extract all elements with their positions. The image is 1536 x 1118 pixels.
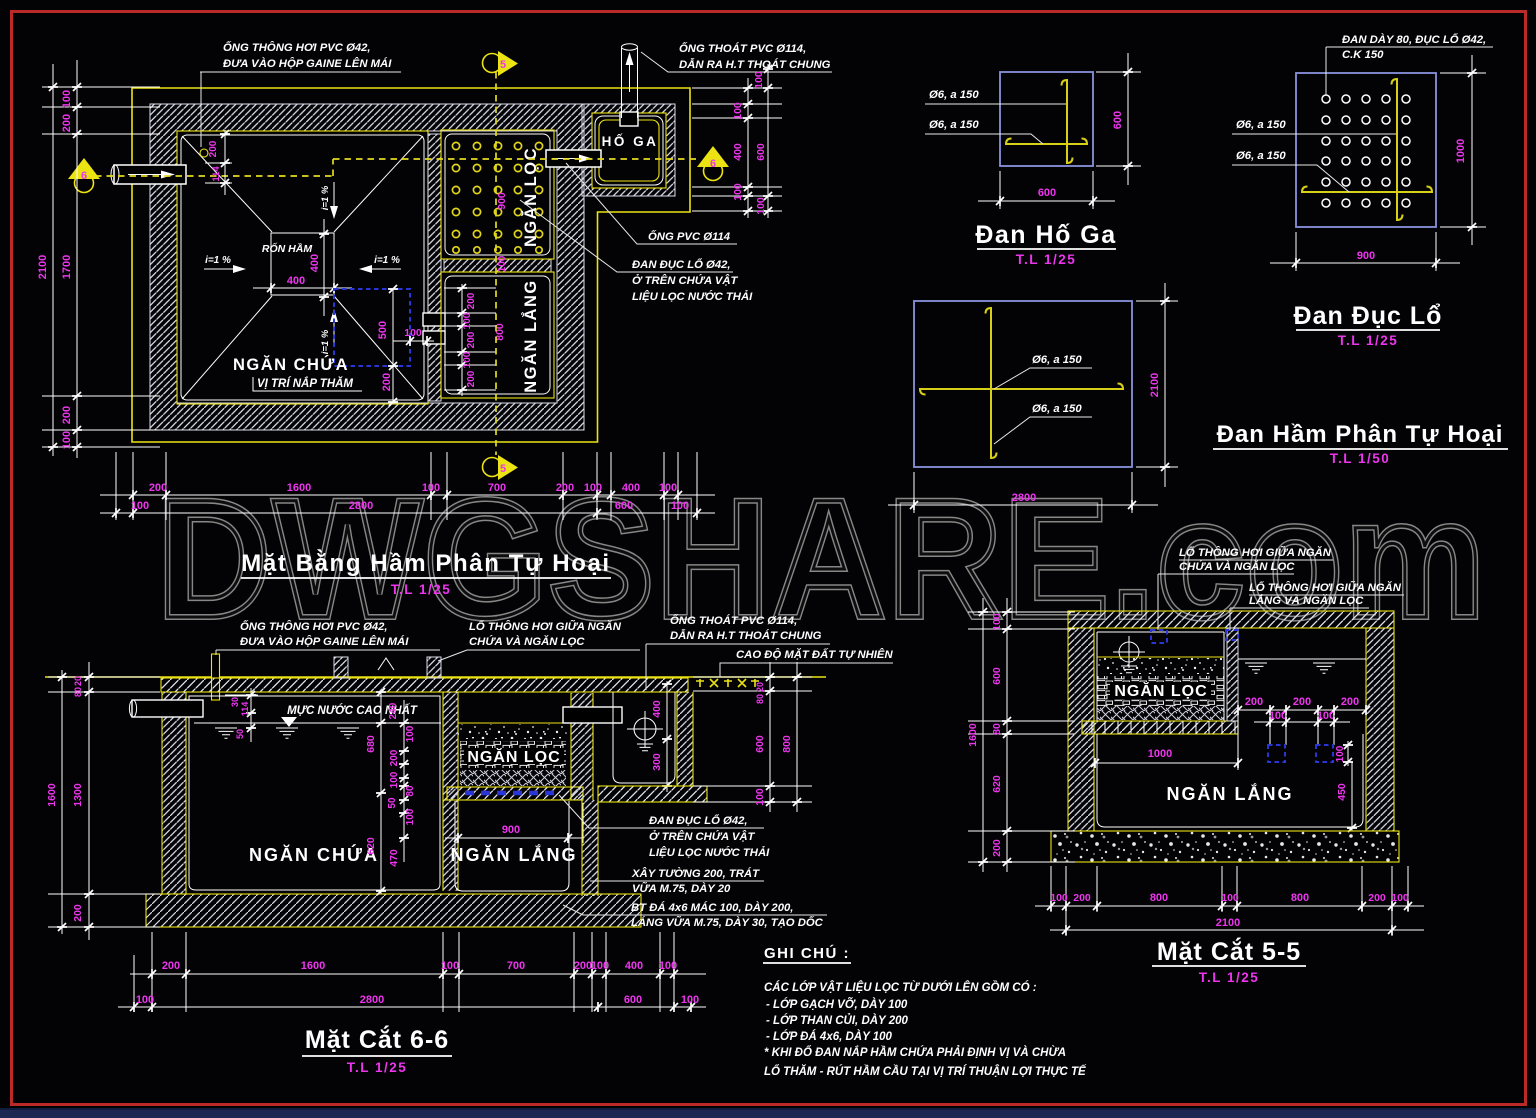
svg-text:100: 100 — [755, 197, 767, 215]
svg-text:LIỆU LỌC NƯỚC THẢI: LIỆU LỌC NƯỚC THẢI — [649, 846, 770, 859]
svg-text:5: 5 — [500, 59, 506, 71]
svg-text:DẪN RA H.T THOÁT CHUNG: DẪN RA H.T THOÁT CHUNG — [670, 629, 822, 642]
svg-text:620: 620 — [365, 837, 377, 855]
svg-text:ỐNG THÔNG HƠI PVC Ø42,: ỐNG THÔNG HƠI PVC Ø42, — [240, 620, 388, 633]
svg-text:100: 100 — [732, 183, 744, 201]
svg-text:LỔ THĂM - RÚT HẦM CẦU TẠI VỊ T: LỔ THĂM - RÚT HẦM CẦU TẠI VỊ TRÍ THUẬN L… — [764, 1065, 1087, 1078]
svg-text:114: 114 — [211, 166, 222, 182]
svg-text:200: 200 — [381, 373, 393, 391]
svg-text:20: 20 — [755, 682, 765, 692]
svg-text:100: 100 — [136, 994, 154, 1006]
svg-text:100: 100 — [441, 960, 459, 972]
svg-text:ĐƯA VÀO HỘP GAINE LÊN MÁI: ĐƯA VÀO HỘP GAINE LÊN MÁI — [223, 57, 392, 70]
svg-text:240: 240 — [388, 702, 399, 719]
svg-text:2100: 2100 — [37, 255, 49, 279]
svg-text:600: 600 — [991, 667, 1003, 685]
svg-text:GHI CHÚ :: GHI CHÚ : — [764, 944, 850, 962]
svg-text:200: 200 — [61, 114, 73, 132]
svg-text:100: 100 — [659, 482, 677, 494]
svg-text:200: 200 — [208, 140, 219, 157]
svg-text:2800: 2800 — [1012, 492, 1036, 504]
svg-text:470: 470 — [388, 849, 400, 867]
svg-text:NGĂN LẮNG: NGĂN LẮNG — [521, 279, 540, 392]
svg-text:CHỨA VÀ NGĂN LỌC: CHỨA VÀ NGĂN LỌC — [469, 635, 585, 648]
svg-text:100: 100 — [61, 431, 73, 449]
svg-text:Ø6, a 150: Ø6, a 150 — [1032, 354, 1082, 366]
svg-text:600: 600 — [615, 500, 633, 512]
svg-text:200: 200 — [149, 482, 167, 494]
svg-text:NGĂN LỌC: NGĂN LỌC — [467, 747, 560, 766]
svg-text:ỐNG PVC Ø114: ỐNG PVC Ø114 — [648, 230, 731, 243]
svg-text:600: 600 — [1038, 187, 1056, 199]
svg-text:2800: 2800 — [360, 994, 384, 1006]
svg-text:114: 114 — [240, 702, 250, 717]
svg-text:450: 450 — [1336, 783, 1348, 801]
svg-text:600: 600 — [1112, 111, 1124, 129]
svg-text:5: 5 — [500, 463, 506, 475]
svg-text:LẮNG VÀ NGĂN LỌC: LẮNG VÀ NGĂN LỌC — [1249, 594, 1364, 607]
svg-text:100: 100 — [1391, 892, 1409, 904]
svg-text:100: 100 — [732, 102, 744, 120]
svg-text:LÁNG VỮA M.75, DÀY 30, TẠO DỐC: LÁNG VỮA M.75, DÀY 30, TẠO DỐC — [631, 916, 824, 929]
svg-text:Đan Đục Lổ: Đan Đục Lổ — [1294, 302, 1443, 330]
svg-text:LỔ THÔNG HƠI GIỮA NGĂN: LỔ THÔNG HƠI GIỮA NGĂN — [1179, 546, 1332, 559]
svg-text:i=1 %: i=1 % — [320, 185, 331, 210]
svg-text:ỐNG THÔNG HƠI PVC Ø42,: ỐNG THÔNG HƠI PVC Ø42, — [223, 41, 371, 54]
svg-text:XÂY TƯỜNG 200, TRÁT: XÂY TƯỜNG 200, TRÁT — [631, 867, 760, 880]
svg-text:100: 100 — [405, 725, 416, 742]
svg-text:400: 400 — [287, 275, 305, 287]
svg-text:NGĂN LẮNG: NGĂN LẮNG — [451, 844, 578, 865]
svg-text:Đan Hầm Phân Tự Hoại: Đan Hầm Phân Tự Hoại — [1217, 421, 1504, 448]
svg-text:200: 200 — [991, 839, 1003, 857]
svg-text:600: 600 — [755, 143, 767, 161]
svg-text:i=1 %: i=1 % — [374, 255, 400, 266]
svg-text:80: 80 — [991, 723, 1003, 735]
svg-text:800: 800 — [1150, 892, 1168, 904]
svg-text:100: 100 — [389, 771, 400, 788]
svg-text:1600: 1600 — [967, 723, 979, 747]
svg-text:NGĂN CHỨA: NGĂN CHỨA — [233, 355, 349, 374]
svg-text:400: 400 — [622, 482, 640, 494]
svg-text:CHỨA VÀ NGĂN LỌC: CHỨA VÀ NGĂN LỌC — [1179, 560, 1295, 573]
svg-text:Ø6, a 150: Ø6, a 150 — [929, 89, 979, 101]
svg-text:200: 200 — [1245, 696, 1263, 708]
svg-text:100: 100 — [1335, 745, 1346, 762]
svg-text:100: 100 — [991, 613, 1003, 631]
svg-text:1600: 1600 — [287, 482, 311, 494]
svg-text:700: 700 — [507, 960, 525, 972]
svg-text:ĐAN DÀY 80, ĐỤC LỔ Ø42,: ĐAN DÀY 80, ĐỤC LỔ Ø42, — [1342, 33, 1486, 46]
svg-text:100: 100 — [681, 994, 699, 1006]
svg-text:100: 100 — [1269, 710, 1287, 722]
svg-text:620: 620 — [991, 775, 1003, 793]
svg-text:DẪN RA H.T THOÁT CHUNG: DẪN RA H.T THOÁT CHUNG — [679, 58, 831, 71]
svg-text:RỐN HẦM: RỐN HẦM — [262, 242, 312, 255]
svg-text:200: 200 — [162, 960, 180, 972]
svg-text:100: 100 — [591, 960, 609, 972]
svg-text:680: 680 — [365, 735, 377, 753]
svg-text:NGĂN LỌC: NGĂN LỌC — [1114, 681, 1207, 700]
svg-text:100: 100 — [584, 482, 602, 494]
svg-text:1000: 1000 — [1148, 748, 1172, 760]
svg-text:- LỚP THAN CỦI, DÀY 200: - LỚP THAN CỦI, DÀY 200 — [766, 1014, 909, 1027]
svg-text:BT ĐÁ 4x6 MÁC 100, DÀY 200,: BT ĐÁ 4x6 MÁC 100, DÀY 200, — [631, 901, 793, 914]
svg-text:30: 30 — [230, 697, 240, 707]
svg-text:600: 600 — [624, 994, 642, 1006]
svg-text:* KHI ĐỔ ĐAN NẮP HẦM CHỨA PHẢI: * KHI ĐỔ ĐAN NẮP HẦM CHỨA PHẢI ĐỊNH VỊ V… — [764, 1046, 1066, 1059]
svg-text:Mặt Cắt 6-6: Mặt Cắt 6-6 — [305, 1024, 449, 1054]
svg-text:6: 6 — [710, 158, 716, 170]
svg-text:100: 100 — [462, 351, 473, 368]
svg-text:T.L 1/50: T.L 1/50 — [1330, 451, 1391, 466]
svg-text:200: 200 — [466, 292, 477, 309]
svg-text:100: 100 — [671, 500, 689, 512]
svg-text:- LỚP GẠCH VỠ, DÀY 100: - LỚP GẠCH VỠ, DÀY 100 — [766, 998, 908, 1011]
svg-text:900: 900 — [496, 192, 508, 210]
svg-text:HỐ GA: HỐ GA — [602, 134, 659, 149]
svg-text:100: 100 — [659, 960, 677, 972]
svg-text:i=1 %: i=1 % — [205, 255, 231, 266]
svg-text:C.K 150: C.K 150 — [1342, 49, 1384, 61]
svg-text:Mặt Cắt 5-5: Mặt Cắt 5-5 — [1157, 936, 1301, 966]
svg-text:50: 50 — [235, 729, 245, 739]
svg-text:ỐNG THOÁT PVC Ø114,: ỐNG THOÁT PVC Ø114, — [670, 614, 797, 627]
svg-text:ĐƯA VÀO HỘP GAINE LÊN MÁI: ĐƯA VÀO HỘP GAINE LÊN MÁI — [240, 635, 409, 648]
svg-text:Ø6, a 150: Ø6, a 150 — [1236, 150, 1286, 162]
svg-text:900: 900 — [502, 824, 520, 836]
svg-text:100: 100 — [462, 312, 473, 329]
svg-text:1300: 1300 — [72, 783, 84, 807]
svg-text:T.L 1/25: T.L 1/25 — [347, 1060, 408, 1075]
svg-text:Ø6, a 150: Ø6, a 150 — [1236, 119, 1286, 131]
svg-text:200: 200 — [1293, 696, 1311, 708]
svg-text:100: 100 — [61, 90, 73, 108]
svg-text:1600: 1600 — [301, 960, 325, 972]
svg-text:T.L 1/25: T.L 1/25 — [1016, 252, 1077, 267]
svg-text:T.L 1/25: T.L 1/25 — [1199, 970, 1260, 985]
svg-text:100: 100 — [753, 71, 765, 89]
svg-text:Mặt Bằng Hầm Phân Tự Hoại: Mặt Bằng Hầm Phân Tự Hoại — [241, 549, 610, 577]
svg-text:100: 100 — [1221, 892, 1239, 904]
svg-text:Ø6, a 150: Ø6, a 150 — [1032, 403, 1082, 415]
svg-text:100: 100 — [497, 255, 508, 272]
svg-text:ĐAN ĐỤC LỔ Ø42,: ĐAN ĐỤC LỔ Ø42, — [649, 814, 748, 827]
svg-text:CÁC LỚP VẬT LIỆU LỌC TỪ DƯỚI L: CÁC LỚP VẬT LIỆU LỌC TỪ DƯỚI LÊN GỒM CÓ … — [764, 981, 1037, 994]
svg-text:80: 80 — [73, 687, 83, 697]
svg-text:100: 100 — [1317, 710, 1335, 722]
svg-text:200: 200 — [466, 331, 477, 348]
svg-text:20: 20 — [73, 676, 83, 686]
svg-text:Ở TRÊN CHỨA VẬT: Ở TRÊN CHỨA VẬT — [649, 830, 756, 843]
svg-text:900: 900 — [1357, 250, 1375, 262]
svg-text:200: 200 — [1341, 696, 1359, 708]
svg-text:200: 200 — [556, 482, 574, 494]
svg-text:T.L 1/25: T.L 1/25 — [1338, 333, 1399, 348]
svg-text:Ở TRÊN CHỨA VẬT: Ở TRÊN CHỨA VẬT — [632, 274, 739, 287]
svg-text:400: 400 — [651, 700, 663, 718]
svg-text:80: 80 — [405, 785, 416, 797]
svg-text:ỐNG THOÁT PVC Ø114,: ỐNG THOÁT PVC Ø114, — [679, 42, 806, 55]
svg-text:300: 300 — [651, 753, 663, 771]
svg-text:200: 200 — [466, 370, 477, 387]
svg-text:200: 200 — [72, 904, 84, 922]
svg-text:800: 800 — [1291, 892, 1309, 904]
svg-text:100: 100 — [754, 788, 766, 806]
svg-text:100: 100 — [1050, 892, 1068, 904]
svg-text:NGĂN LỌC: NGĂN LỌC — [521, 147, 540, 247]
svg-text:i=1 %: i=1 % — [320, 329, 331, 354]
svg-text:NGĂN CHỨA: NGĂN CHỨA — [249, 844, 379, 865]
svg-text:2100: 2100 — [1149, 373, 1161, 397]
svg-text:Đan Hố Ga: Đan Hố Ga — [975, 221, 1116, 249]
svg-text:600: 600 — [754, 735, 766, 753]
svg-text:1600: 1600 — [46, 783, 58, 807]
svg-text:50: 50 — [387, 797, 398, 809]
svg-text:T.L 1/25: T.L 1/25 — [391, 582, 452, 597]
svg-text:LỔ THÔNG HƠI GIỮA NGĂN: LỔ THÔNG HƠI GIỮA NGĂN — [1249, 581, 1402, 594]
svg-text:80: 80 — [755, 694, 765, 704]
svg-text:ĐAN ĐỤC LỔ Ø42,: ĐAN ĐỤC LỔ Ø42, — [632, 258, 731, 271]
svg-text:LIỆU LỌC NƯỚC THẢI: LIỆU LỌC NƯỚC THẢI — [632, 290, 753, 303]
svg-text:200: 200 — [574, 960, 592, 972]
svg-text:100: 100 — [404, 327, 422, 339]
svg-text:200: 200 — [1073, 892, 1091, 904]
svg-text:100: 100 — [131, 500, 149, 512]
svg-text:VỊ TRÍ NẮP THĂM: VỊ TRÍ NẮP THĂM — [257, 377, 353, 390]
svg-text:2100: 2100 — [1216, 917, 1240, 929]
svg-text:100: 100 — [422, 482, 440, 494]
svg-text:VỮA M.75, DÀY 20: VỮA M.75, DÀY 20 — [632, 882, 731, 895]
svg-text:400: 400 — [625, 960, 643, 972]
svg-text:200: 200 — [1368, 892, 1386, 904]
svg-text:6: 6 — [81, 170, 87, 182]
svg-text:1700: 1700 — [61, 255, 73, 279]
svg-text:200: 200 — [389, 749, 400, 766]
svg-text:200: 200 — [61, 406, 73, 424]
svg-text:- LỚP ĐÁ 4x6, DÀY 100: - LỚP ĐÁ 4x6, DÀY 100 — [766, 1030, 893, 1043]
svg-text:Ø6, a 150: Ø6, a 150 — [929, 119, 979, 131]
svg-text:NGĂN LẮNG: NGĂN LẮNG — [1167, 783, 1294, 804]
svg-text:400: 400 — [732, 143, 744, 161]
svg-text:800: 800 — [781, 735, 793, 753]
svg-text:1000: 1000 — [1455, 139, 1467, 163]
svg-text:100: 100 — [405, 808, 416, 825]
svg-text:500: 500 — [377, 321, 389, 339]
svg-text:400: 400 — [309, 254, 321, 272]
svg-text:LỔ THÔNG HƠI GIỮA NGĂN: LỔ THÔNG HƠI GIỮA NGĂN — [469, 620, 622, 633]
svg-text:CAO ĐỘ MẶT ĐẤT TỰ NHIÊN: CAO ĐỘ MẶT ĐẤT TỰ NHIÊN — [736, 648, 893, 661]
svg-text:2800: 2800 — [349, 500, 373, 512]
svg-text:700: 700 — [488, 482, 506, 494]
